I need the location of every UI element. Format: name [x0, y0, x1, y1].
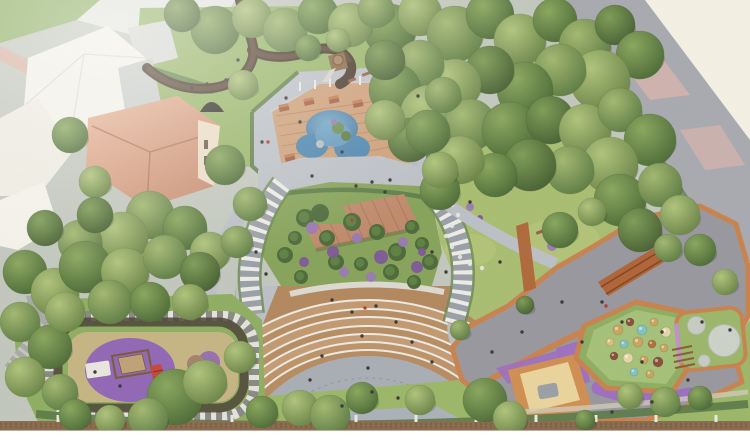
park-aerial-render [0, 0, 750, 446]
grain-overlay [0, 0, 750, 432]
park-render-canvas [0, 0, 750, 446]
bottom-white-margin [0, 431, 750, 446]
frame-edge-line [0, 430, 750, 431]
